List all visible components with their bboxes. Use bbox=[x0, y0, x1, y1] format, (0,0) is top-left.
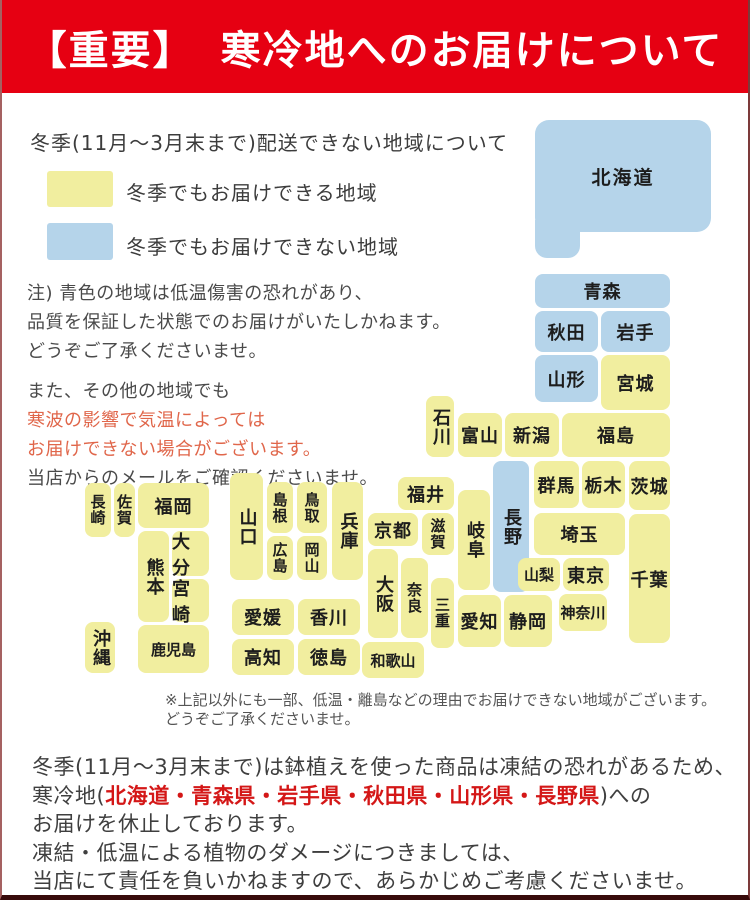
prefecture-label: 宮城 bbox=[617, 370, 655, 396]
prefecture-oita: 大分 bbox=[172, 531, 209, 576]
prefecture-aichi: 愛知 bbox=[458, 595, 501, 647]
prefecture-label: 山形 bbox=[548, 366, 586, 392]
prefecture-niigata: 新潟 bbox=[505, 413, 559, 457]
prefecture-wakayama: 和歌山 bbox=[362, 642, 424, 678]
prefecture-hiroshima: 広島 bbox=[267, 536, 293, 580]
prefecture-label: 高知 bbox=[244, 644, 282, 670]
prefecture-label: 鹿児島 bbox=[151, 639, 196, 660]
prefecture-label: 香川 bbox=[310, 604, 348, 630]
cold-region-delivery-notice: 【重要】 寒冷地へのお届けについて 冬季(11月〜3月末まで)配送できない地域に… bbox=[0, 0, 750, 900]
prefecture-label: 岩手 bbox=[617, 319, 655, 345]
prefecture-label: 福島 bbox=[597, 422, 635, 448]
map-footnote: ※上記以外にも一部、低温・離島などの理由でお届けできない地域がございます。 どう… bbox=[165, 691, 716, 729]
prefecture-label: 福井 bbox=[407, 481, 445, 507]
prefecture-label: 佐賀 bbox=[114, 494, 135, 526]
map-footnote-line: ※上記以外にも一部、低温・離島などの理由でお届けできない地域がございます。 bbox=[165, 691, 716, 710]
prefecture-okinawa: 沖縄 bbox=[85, 622, 115, 673]
prefecture-aomori: 青森 bbox=[535, 274, 670, 308]
prefecture-kanagawa: 神奈川 bbox=[559, 594, 607, 631]
prefecture-label: 静岡 bbox=[509, 608, 547, 634]
prefecture-label: 北海道 bbox=[591, 163, 654, 190]
prefecture-label: 京都 bbox=[374, 517, 412, 543]
prefecture-miyazaki: 宮崎 bbox=[172, 579, 209, 622]
prefecture-shiga: 滋賀 bbox=[422, 513, 454, 555]
prefecture-kochi: 高知 bbox=[232, 639, 294, 675]
prefecture-tokyo: 東京 bbox=[563, 558, 609, 591]
prefecture-kagoshima: 鹿児島 bbox=[138, 625, 209, 673]
prefecture-gunma: 群馬 bbox=[534, 461, 579, 508]
prefecture-fukushima: 福島 bbox=[562, 413, 670, 457]
prefecture-label: 広島 bbox=[270, 542, 291, 574]
prefecture-label: 栃木 bbox=[585, 472, 623, 498]
prefecture-label: 島根 bbox=[270, 492, 291, 524]
prefecture-kyoto: 京都 bbox=[368, 513, 418, 546]
prefecture-label: 埼玉 bbox=[561, 521, 599, 547]
prefecture-label: 千葉 bbox=[631, 566, 669, 592]
footer-line: 冬季(11月〜3月末まで)は鉢植えを使った商品は凍結の恐れがあるため、 bbox=[32, 753, 736, 782]
prefecture-label: 宮崎 bbox=[172, 575, 209, 627]
prefecture-ishikawa: 石川 bbox=[426, 396, 454, 457]
prefecture-label: 奈良 bbox=[404, 582, 425, 614]
prefecture-chiba: 千葉 bbox=[629, 514, 670, 643]
footer-line: 凍結・低温による植物のダメージにつきましては、 bbox=[32, 839, 736, 868]
prefecture-fukuoka: 福岡 bbox=[138, 483, 209, 528]
prefecture-kumamoto: 熊本 bbox=[138, 531, 169, 622]
prefecture-label: 新潟 bbox=[513, 422, 551, 448]
prefecture-label: 長野 bbox=[498, 508, 524, 546]
footer-cold-prefectures: 北海道・青森県・岩手県・秋田県・山形県・長野県 bbox=[105, 784, 600, 808]
prefecture-miyagi: 宮城 bbox=[601, 355, 670, 410]
prefecture-label: 大阪 bbox=[370, 575, 396, 613]
prefecture-yamaguchi: 山口 bbox=[230, 473, 263, 580]
prefecture-label: 鳥取 bbox=[302, 492, 323, 524]
prefecture-mie: 三重 bbox=[431, 578, 454, 648]
prefecture-saitama: 埼玉 bbox=[534, 513, 625, 555]
prefecture-label: 徳島 bbox=[310, 644, 348, 670]
prefecture-osaka: 大阪 bbox=[368, 549, 398, 638]
prefecture-label: 神奈川 bbox=[560, 602, 605, 623]
prefecture-akita: 秋田 bbox=[535, 311, 598, 352]
prefecture-toyama: 富山 bbox=[458, 413, 502, 457]
prefecture-label: 岡山 bbox=[302, 542, 323, 574]
map-footnote-line: どうぞご了承くださいませ。 bbox=[165, 710, 716, 729]
prefecture-label: 東京 bbox=[567, 562, 605, 588]
prefecture-nara: 奈良 bbox=[401, 558, 428, 638]
footer-line: 寒冷地(北海道・青森県・岩手県・秋田県・山形県・長野県)への bbox=[32, 782, 736, 811]
footer-line: 当店にて責任を負いかねますので、あらかじめご考慮くださいませ。 bbox=[32, 867, 736, 896]
prefecture-nagasaki: 長崎 bbox=[85, 483, 111, 537]
prefecture-label: 愛知 bbox=[461, 608, 499, 634]
prefecture-gifu: 岐阜 bbox=[458, 490, 490, 590]
prefecture-shimane: 島根 bbox=[267, 482, 293, 533]
prefecture-tochigi: 栃木 bbox=[582, 461, 625, 508]
prefecture-label: 沖縄 bbox=[87, 629, 113, 667]
prefecture-shizuoka: 静岡 bbox=[504, 595, 552, 647]
footer-line: お届けを休止しております。 bbox=[32, 810, 736, 839]
prefecture-label: 青森 bbox=[584, 278, 622, 304]
footer-notice: 冬季(11月〜3月末まで)は鉢植えを使った商品は凍結の恐れがあるため、 寒冷地(… bbox=[32, 753, 736, 896]
prefecture-yamanashi: 山梨 bbox=[518, 558, 560, 591]
prefecture-saga: 佐賀 bbox=[114, 483, 135, 537]
prefecture-label: 富山 bbox=[461, 422, 499, 448]
prefecture-label: 大分 bbox=[172, 528, 209, 580]
prefecture-hyogo: 兵庫 bbox=[332, 482, 363, 580]
prefecture-label: 岐阜 bbox=[461, 521, 487, 559]
prefecture-fukui: 福井 bbox=[398, 477, 454, 510]
japan-prefecture-map: 北海道青森秋田岩手山形宮城福島新潟富山石川長野岐阜群馬栃木茨城埼玉千葉山梨東京神… bbox=[2, 0, 750, 750]
prefecture-iwate: 岩手 bbox=[601, 311, 670, 352]
footer-text: 寒冷地( bbox=[32, 784, 105, 808]
prefecture-label: 石川 bbox=[427, 408, 453, 446]
prefecture-label: 茨城 bbox=[631, 473, 669, 499]
prefecture-label: 秋田 bbox=[548, 319, 586, 345]
prefecture-label: 滋賀 bbox=[428, 518, 449, 550]
prefecture-ibaraki: 茨城 bbox=[629, 461, 670, 510]
prefecture-label: 熊本 bbox=[141, 558, 167, 596]
prefecture-okayama: 岡山 bbox=[297, 536, 327, 580]
prefecture-ehime: 愛媛 bbox=[232, 599, 294, 635]
prefecture-label: 山梨 bbox=[524, 564, 554, 585]
prefecture-label: 兵庫 bbox=[335, 512, 361, 550]
prefecture-label: 山口 bbox=[234, 508, 260, 546]
prefecture-yamagata: 山形 bbox=[535, 355, 598, 402]
prefecture-label: 三重 bbox=[432, 597, 453, 629]
prefecture-tokushima: 徳島 bbox=[298, 639, 360, 675]
prefecture-label: 和歌山 bbox=[370, 650, 415, 671]
prefecture-label: 愛媛 bbox=[244, 604, 282, 630]
footer-text: )への bbox=[600, 784, 652, 808]
prefecture-tottori: 鳥取 bbox=[297, 482, 327, 533]
prefecture-kagawa: 香川 bbox=[298, 599, 360, 635]
prefecture-label: 長崎 bbox=[88, 494, 109, 526]
prefecture-label: 群馬 bbox=[538, 472, 576, 498]
prefecture-label: 福岡 bbox=[155, 493, 193, 519]
prefecture-hokkaido: 北海道 bbox=[535, 120, 711, 232]
